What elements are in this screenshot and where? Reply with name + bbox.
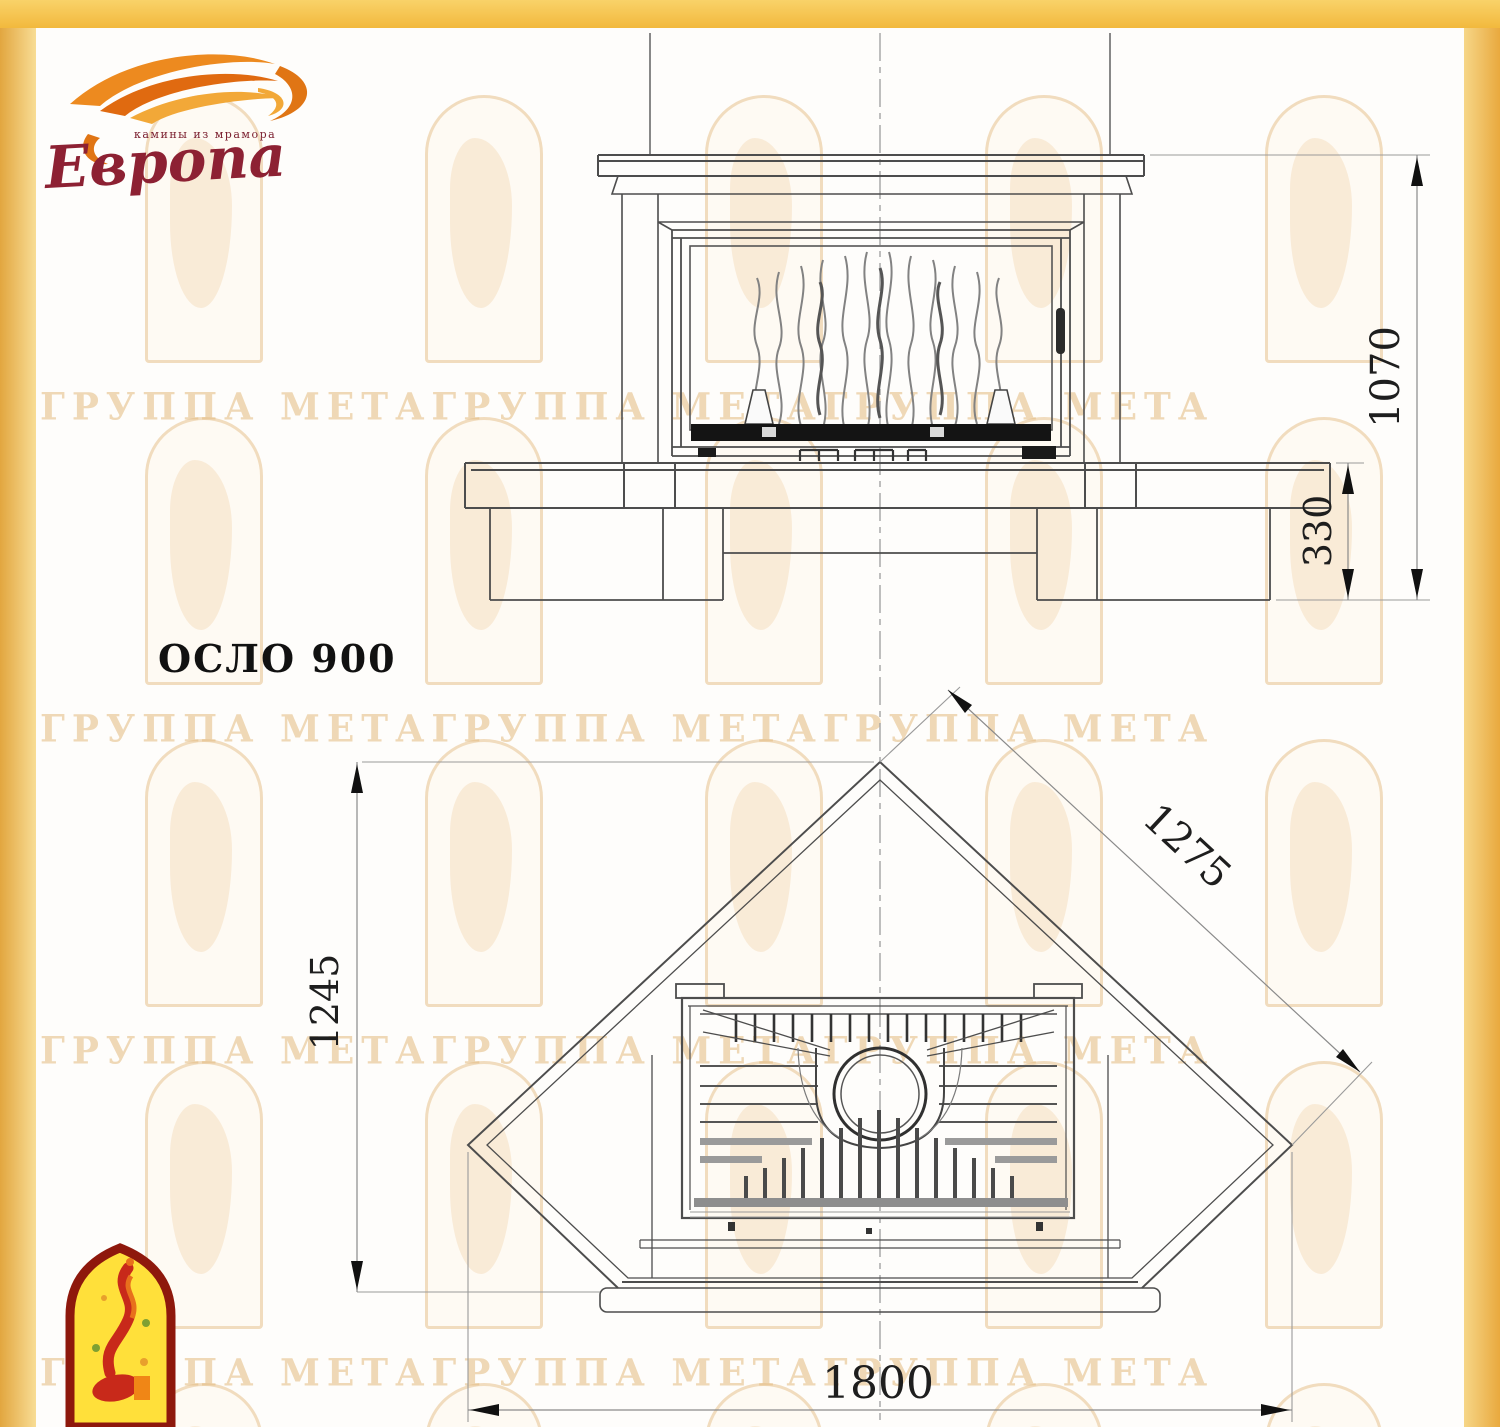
insert-foot bbox=[728, 1222, 735, 1231]
dim-label-depth: 1245 bbox=[303, 954, 347, 1051]
hearth-gap bbox=[930, 427, 944, 437]
arrow-icon bbox=[1342, 569, 1354, 598]
model-title: ОСЛО 900 bbox=[158, 636, 397, 681]
dim-label-width: 1800 bbox=[822, 1358, 934, 1409]
arrow-icon bbox=[1411, 569, 1423, 598]
side-pillars bbox=[622, 194, 1120, 463]
insert-base-lines bbox=[690, 1212, 1070, 1217]
ash-drawer-knob bbox=[1022, 446, 1056, 459]
hearth-gap bbox=[762, 427, 776, 437]
europa-logo: камины из мрамора Европа bbox=[30, 26, 330, 216]
flame-pattern bbox=[754, 252, 1001, 430]
dim-label-bench-height: 330 bbox=[1296, 495, 1340, 568]
arrow-icon bbox=[351, 1261, 363, 1290]
bench-slab bbox=[465, 463, 1330, 508]
front-view-dimensions: 1070 330 bbox=[1150, 155, 1430, 600]
page: ГРУППА МЕТАГРУППА МЕТАГРУППА МЕТА ГРУППА… bbox=[0, 0, 1500, 1427]
insert-ear bbox=[1034, 984, 1082, 998]
firebox-foot bbox=[698, 448, 716, 457]
hearth-strip bbox=[691, 424, 1051, 441]
lintel bbox=[658, 222, 1084, 230]
side-bar bbox=[700, 1138, 812, 1145]
dim-label-side: 1275 bbox=[1134, 795, 1240, 898]
insert-foot bbox=[1036, 1222, 1043, 1231]
deflector-teeth bbox=[736, 1014, 1021, 1042]
arrow-icon bbox=[351, 764, 363, 793]
firebird-emblem bbox=[58, 1228, 183, 1427]
door-handle bbox=[1056, 308, 1065, 354]
dim-label-total-height: 1070 bbox=[1363, 326, 1409, 428]
gold-border-right bbox=[1464, 0, 1500, 1427]
arrow-icon bbox=[1342, 465, 1354, 494]
logo-wordmark: Европа bbox=[41, 121, 288, 202]
grate-bars bbox=[744, 1110, 1014, 1198]
arrow-icon bbox=[1261, 1404, 1290, 1416]
insert-ear bbox=[676, 984, 724, 998]
insert-foot bbox=[866, 1228, 872, 1234]
side-bar bbox=[995, 1156, 1057, 1163]
side-bar bbox=[945, 1138, 1057, 1145]
front-view bbox=[465, 33, 1330, 600]
arrow-icon bbox=[470, 1404, 499, 1416]
gold-border-top bbox=[0, 0, 1500, 28]
side-bar bbox=[700, 1156, 762, 1163]
arrow-icon bbox=[1411, 157, 1423, 186]
mantel-molding bbox=[612, 176, 1132, 194]
mantel-shelf bbox=[598, 155, 1144, 176]
grate-base-bar bbox=[694, 1198, 1068, 1207]
